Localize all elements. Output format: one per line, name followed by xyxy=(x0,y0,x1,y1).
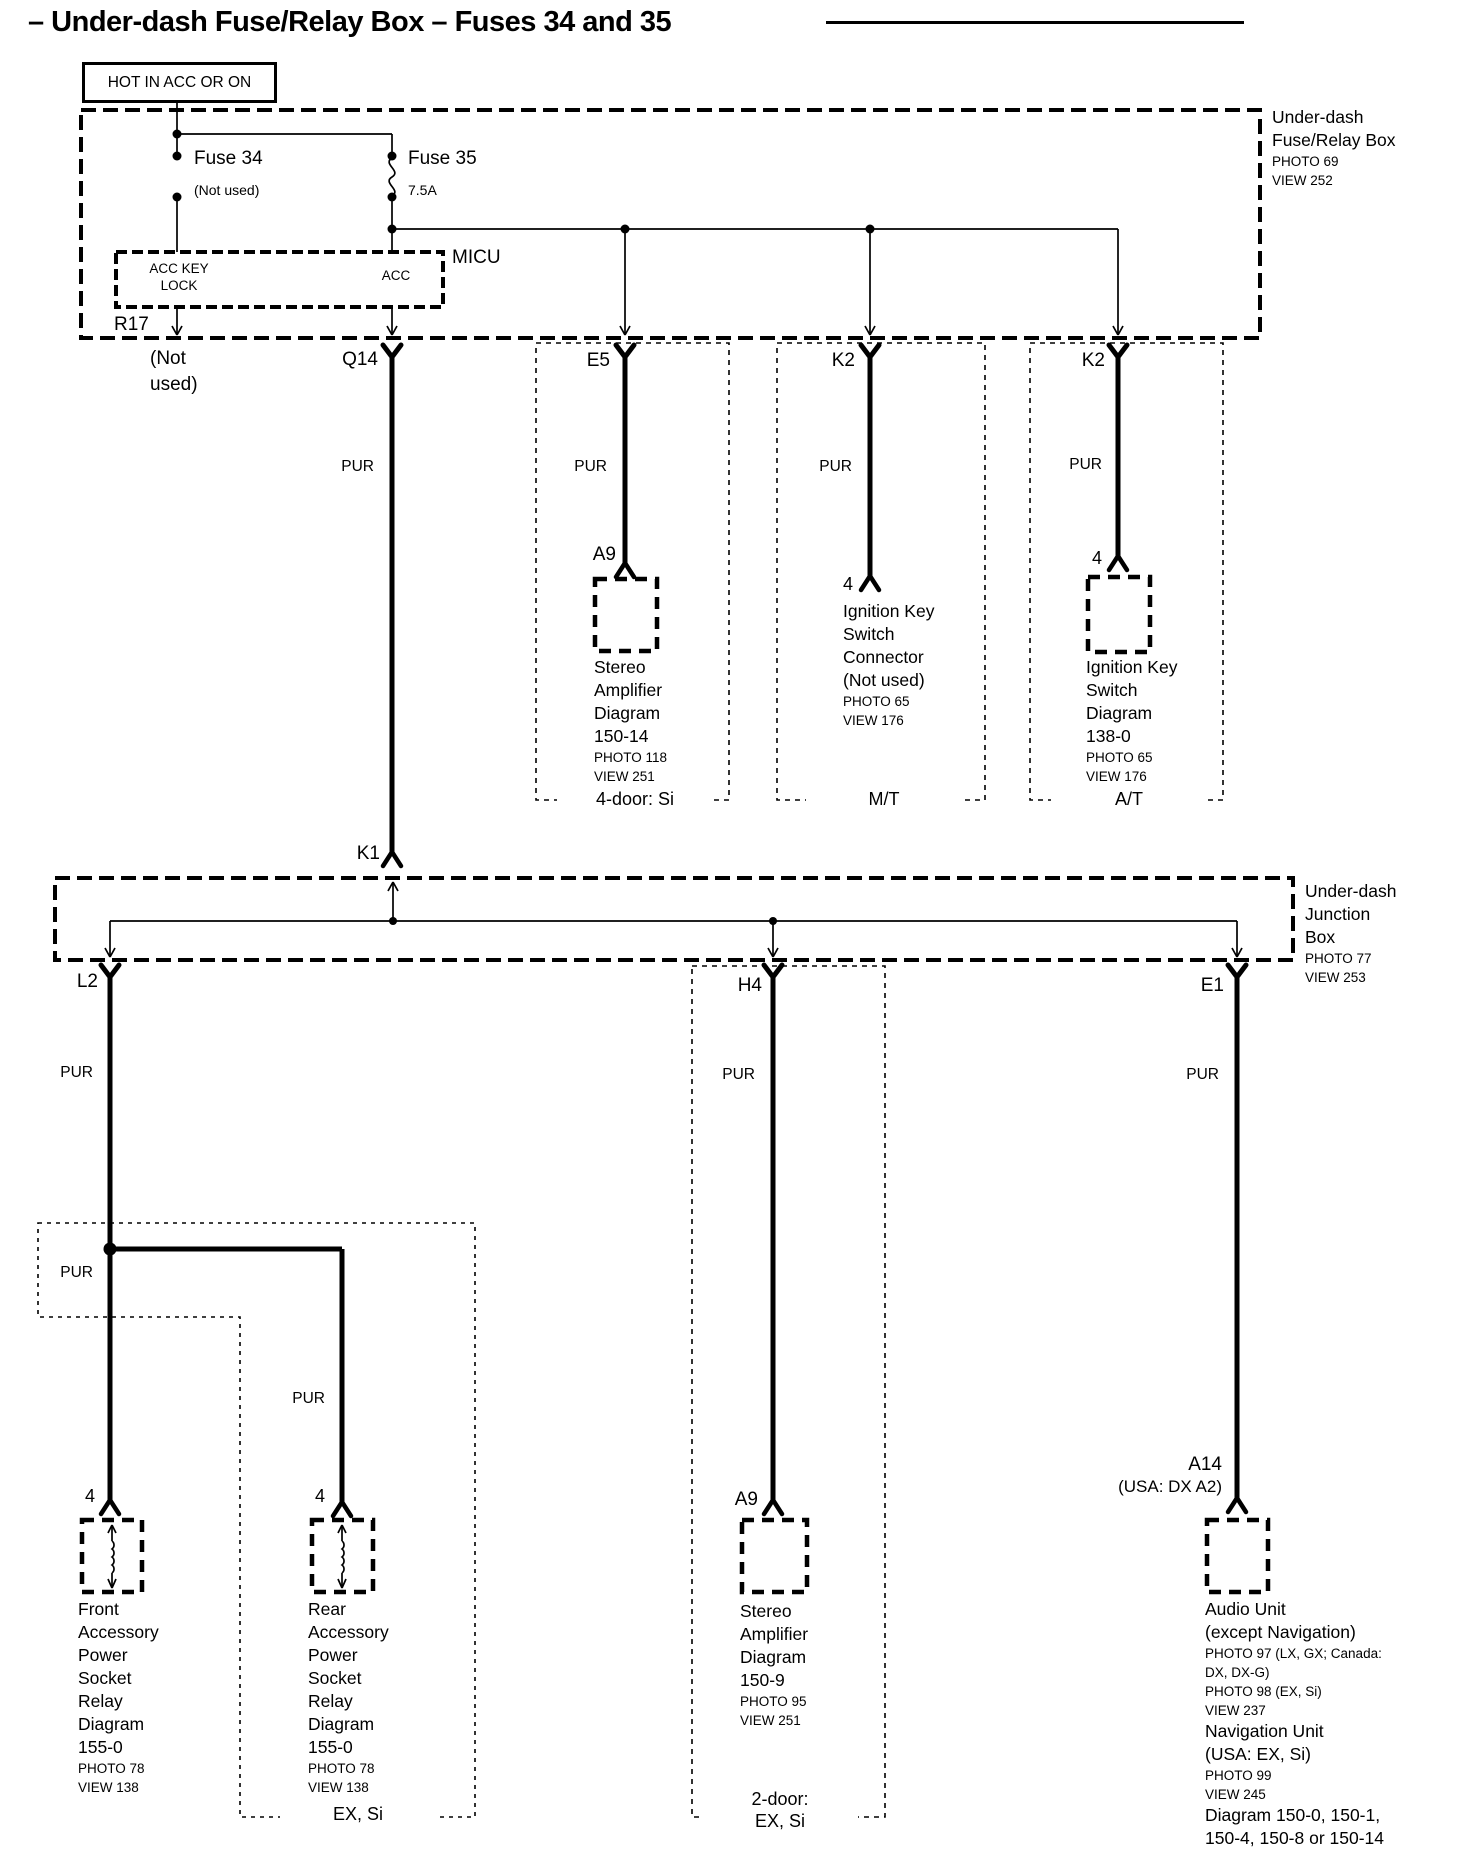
connector-label-e5: E5 xyxy=(552,350,610,372)
wire-color-e5: PUR xyxy=(549,458,607,476)
rear-socket-label: Rear Accessory Power Socket Relay Diagra… xyxy=(308,1598,389,1797)
fuse35-label: Fuse 35 xyxy=(408,148,477,170)
connector-label-l2: L2 xyxy=(40,971,98,993)
micu-label: MICU xyxy=(452,247,501,269)
connector-label-a9-top: A9 xyxy=(558,544,616,566)
wire-color-l2-branch: PUR xyxy=(35,1264,93,1282)
power-source-box: HOT IN ACC OR ON xyxy=(82,62,277,103)
junction-box-label: Under-dash Junction Box PHOTO 77 VIEW 25… xyxy=(1305,880,1396,987)
stereo-amp-bottom-box xyxy=(742,1520,807,1592)
ignition-switch-label: Ignition Key Switch Diagram 138-0 PHOTO … xyxy=(1086,656,1177,786)
connector-label-q14: Q14 xyxy=(302,349,378,371)
connector-label-k1: K1 xyxy=(322,843,380,865)
wire-color-l2: PUR xyxy=(35,1064,93,1082)
wire-color-h4: PUR xyxy=(697,1066,755,1084)
wire-color-rear: PUR xyxy=(267,1390,325,1408)
option-regions xyxy=(38,343,1223,1817)
connector-chevrons-top xyxy=(101,345,1246,977)
thick-wires xyxy=(110,355,1237,1502)
fuse-relay-box-view: VIEW 252 xyxy=(1272,171,1396,190)
junction-dots xyxy=(104,130,875,1256)
region-label-mt: M/T xyxy=(806,789,962,810)
front-socket-label: Front Accessory Power Socket Relay Diagr… xyxy=(78,1598,159,1797)
junction-box-outline xyxy=(55,878,1293,960)
fuse-relay-box-photo: PHOTO 69 xyxy=(1272,152,1396,171)
micu-pin-acc-key-lock: ACC KEY LOCK xyxy=(120,260,238,294)
fuse34-label: Fuse 34 xyxy=(194,148,263,170)
pin-label-4-mt: 4 xyxy=(843,574,853,595)
connector-label-a14-note: (USA: DX A2) xyxy=(1040,1477,1222,1497)
fuse-relay-box-outline xyxy=(81,110,1260,338)
wire-color-k2-at: PUR xyxy=(1044,456,1102,474)
region-mt xyxy=(777,343,985,800)
connector-chevrons-end xyxy=(101,556,1246,1516)
region-label-at: A/T xyxy=(1051,789,1207,810)
connector-label-a9-bottom: A9 xyxy=(700,1489,758,1511)
fuse-relay-box-name-1: Under-dash xyxy=(1272,106,1396,129)
fuse-relay-box-name-2: Fuse/Relay Box xyxy=(1272,129,1396,152)
ignition-switch-box xyxy=(1088,577,1150,652)
page-title: – Under-dash Fuse/Relay Box – Fuses 34 a… xyxy=(28,6,671,39)
pin-label-4-at: 4 xyxy=(1092,548,1102,569)
connector-label-r17: R17 xyxy=(114,314,149,336)
stereo-amp-top-box xyxy=(595,579,657,651)
connector-label-e1: E1 xyxy=(1166,975,1224,997)
fuse35-rating: 7.5A xyxy=(408,182,437,198)
audio-unit-label: Audio Unit (except Navigation) PHOTO 97 … xyxy=(1205,1598,1384,1850)
fuse35-element xyxy=(389,158,395,196)
region-label-ex-si: EX, Si xyxy=(280,1804,436,1825)
connector-label-a14: A14 xyxy=(1100,1454,1222,1476)
connector-label-k2-mt: K2 xyxy=(797,350,855,372)
title-rule xyxy=(826,21,1244,24)
micu-pin-acc: ACC xyxy=(374,268,418,284)
connector-label-h4: H4 xyxy=(704,975,762,997)
region-label-2door: 2-door: EX, Si xyxy=(702,1788,858,1832)
thin-wires xyxy=(110,103,1237,1587)
wire-color-e1: PUR xyxy=(1161,1066,1219,1084)
audio-unit-box xyxy=(1207,1520,1268,1592)
r17-not-used-note: (Not used) xyxy=(150,346,198,398)
stereo-amp-top-label: Stereo Amplifier Diagram 150-14 PHOTO 11… xyxy=(594,656,667,786)
ignition-connector-label: Ignition Key Switch Connector (Not used)… xyxy=(843,600,934,730)
stereo-amp-bottom-label: Stereo Amplifier Diagram 150-9 PHOTO 95 … xyxy=(740,1600,808,1730)
region-label-4door-si: 4-door: Si xyxy=(557,789,713,810)
fuse-relay-box-label: Under-dash Fuse/Relay Box PHOTO 69 VIEW … xyxy=(1272,106,1396,190)
pin-label-4-front: 4 xyxy=(85,1486,95,1507)
pin-label-4-rear: 4 xyxy=(315,1486,325,1507)
connector-label-k2-at: K2 xyxy=(1047,350,1105,372)
wire-color-q14: PUR xyxy=(316,458,374,476)
fuse34-note: (Not used) xyxy=(194,182,259,198)
wiring-diagram: – Under-dash Fuse/Relay Box – Fuses 34 a… xyxy=(0,0,1472,1860)
wire-color-k2-mt: PUR xyxy=(794,458,852,476)
